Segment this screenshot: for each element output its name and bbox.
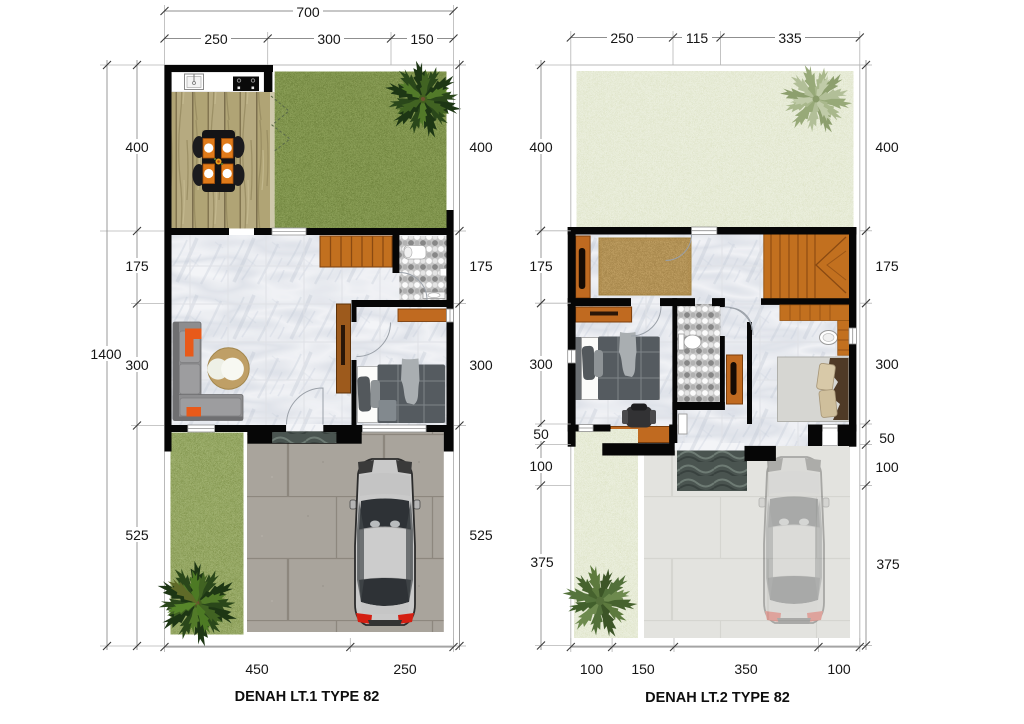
- svg-text:175: 175: [469, 258, 493, 274]
- svg-text:50: 50: [533, 426, 549, 442]
- svg-text:335: 335: [778, 30, 802, 46]
- svg-text:175: 175: [125, 258, 149, 274]
- svg-text:350: 350: [734, 661, 758, 677]
- svg-text:300: 300: [317, 31, 341, 47]
- svg-text:450: 450: [245, 661, 269, 677]
- svg-text:300: 300: [125, 357, 149, 373]
- svg-text:525: 525: [125, 527, 149, 543]
- svg-text:1400: 1400: [90, 346, 121, 362]
- svg-text:50: 50: [879, 430, 895, 446]
- svg-text:175: 175: [875, 258, 899, 274]
- svg-text:375: 375: [530, 554, 554, 570]
- svg-text:175: 175: [529, 258, 553, 274]
- svg-text:300: 300: [529, 356, 553, 372]
- svg-text:250: 250: [204, 31, 228, 47]
- svg-text:300: 300: [469, 357, 493, 373]
- svg-text:115: 115: [686, 30, 709, 46]
- svg-text:375: 375: [876, 556, 900, 572]
- svg-text:DENAH LT.2 TYPE 82: DENAH LT.2 TYPE 82: [645, 690, 790, 706]
- svg-text:400: 400: [125, 139, 149, 155]
- svg-text:400: 400: [469, 139, 493, 155]
- svg-text:525: 525: [469, 527, 493, 543]
- svg-text:DENAH LT.1 TYPE 82: DENAH LT.1 TYPE 82: [235, 689, 380, 705]
- svg-text:300: 300: [875, 356, 899, 372]
- svg-text:250: 250: [393, 661, 417, 677]
- svg-text:100: 100: [529, 458, 553, 474]
- svg-text:700: 700: [296, 4, 320, 20]
- svg-text:400: 400: [529, 139, 553, 155]
- svg-text:250: 250: [610, 30, 634, 46]
- svg-text:400: 400: [875, 139, 899, 155]
- svg-text:100: 100: [580, 661, 604, 677]
- svg-text:150: 150: [410, 31, 434, 47]
- svg-text:150: 150: [631, 661, 655, 677]
- svg-text:100: 100: [875, 459, 899, 475]
- svg-text:100: 100: [827, 661, 851, 677]
